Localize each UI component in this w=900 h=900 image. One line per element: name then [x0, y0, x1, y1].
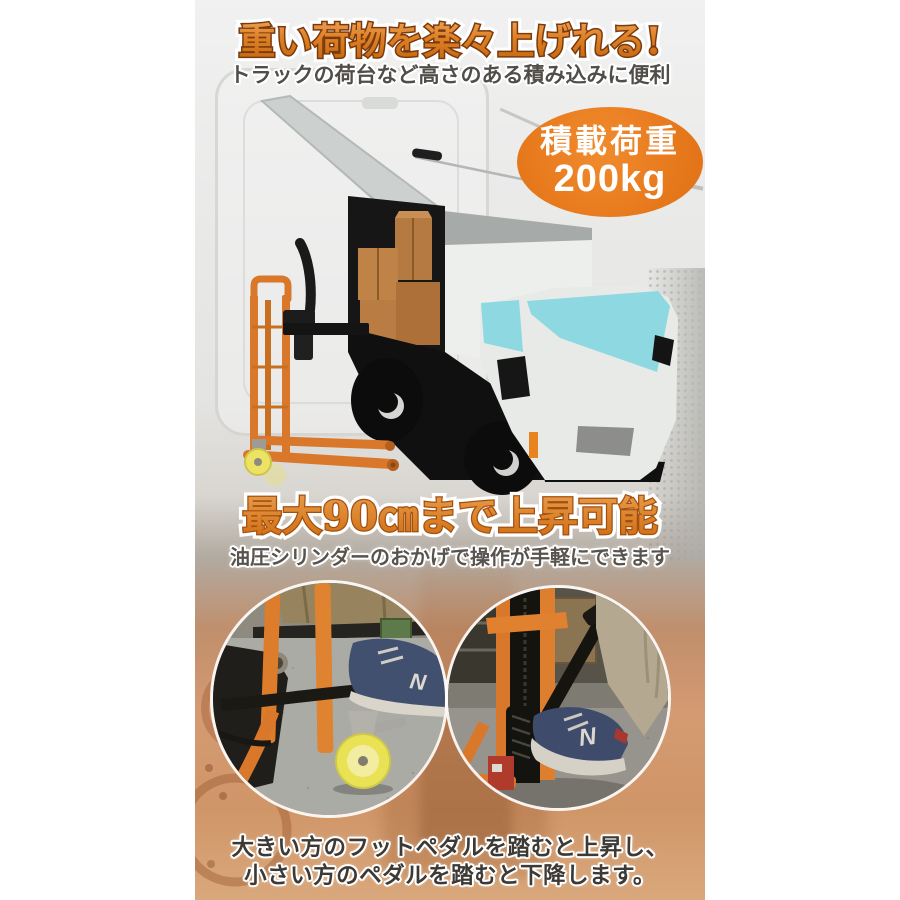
lift-title: 最大90㎝まで上昇可能 最大90㎝まで上昇可能 [195, 486, 705, 544]
product-banner: 重い荷物を楽々上げれる! 重い荷物を楽々上げれる! トラックの荷台など高さのある… [0, 0, 900, 900]
stacker-forks [283, 323, 369, 335]
badge-value: 200kg [554, 158, 667, 200]
rear-wheel [351, 358, 423, 442]
bumper [576, 426, 634, 456]
lift-subtitle: 油圧シリンダーのおかげで操作が手軽にできます [195, 541, 705, 570]
instruction-line-1: 大きい方のフットペダルを踏むと上昇し、 [231, 834, 668, 862]
left-pedal-photo: N [213, 583, 445, 815]
left-mirror [497, 356, 530, 400]
pedal-instructions: 大きい方のフットペダルを踏むと上昇し、 小さい方のペダルを踏むと下降します。 [195, 834, 705, 890]
right-pedal-photo: N [448, 588, 668, 808]
backdrop-vent [362, 97, 398, 109]
load-capacity-badge: 積載荷重 200kg [517, 107, 703, 217]
photo-red-box [488, 756, 514, 790]
stacker-leg-upper [255, 440, 388, 445]
marker-light [529, 432, 538, 458]
banner-content-area: 重い荷物を楽々上げれる! 重い荷物を楽々上げれる! トラックの荷台など高さのある… [195, 0, 705, 900]
hero-subtitle: トラックの荷台など高さのある積み込みに便利 [195, 59, 705, 89]
lift-title-text: 最大90㎝まで上昇可能 [242, 493, 658, 540]
instruction-line-2: 小さい方のペダルを踏むと下降します。 [244, 862, 656, 890]
badge-label: 積載荷重 [540, 124, 680, 158]
hero-title-text: 重い荷物を楽々上げれる! [238, 19, 661, 63]
photo-orange-post-right [315, 583, 334, 753]
